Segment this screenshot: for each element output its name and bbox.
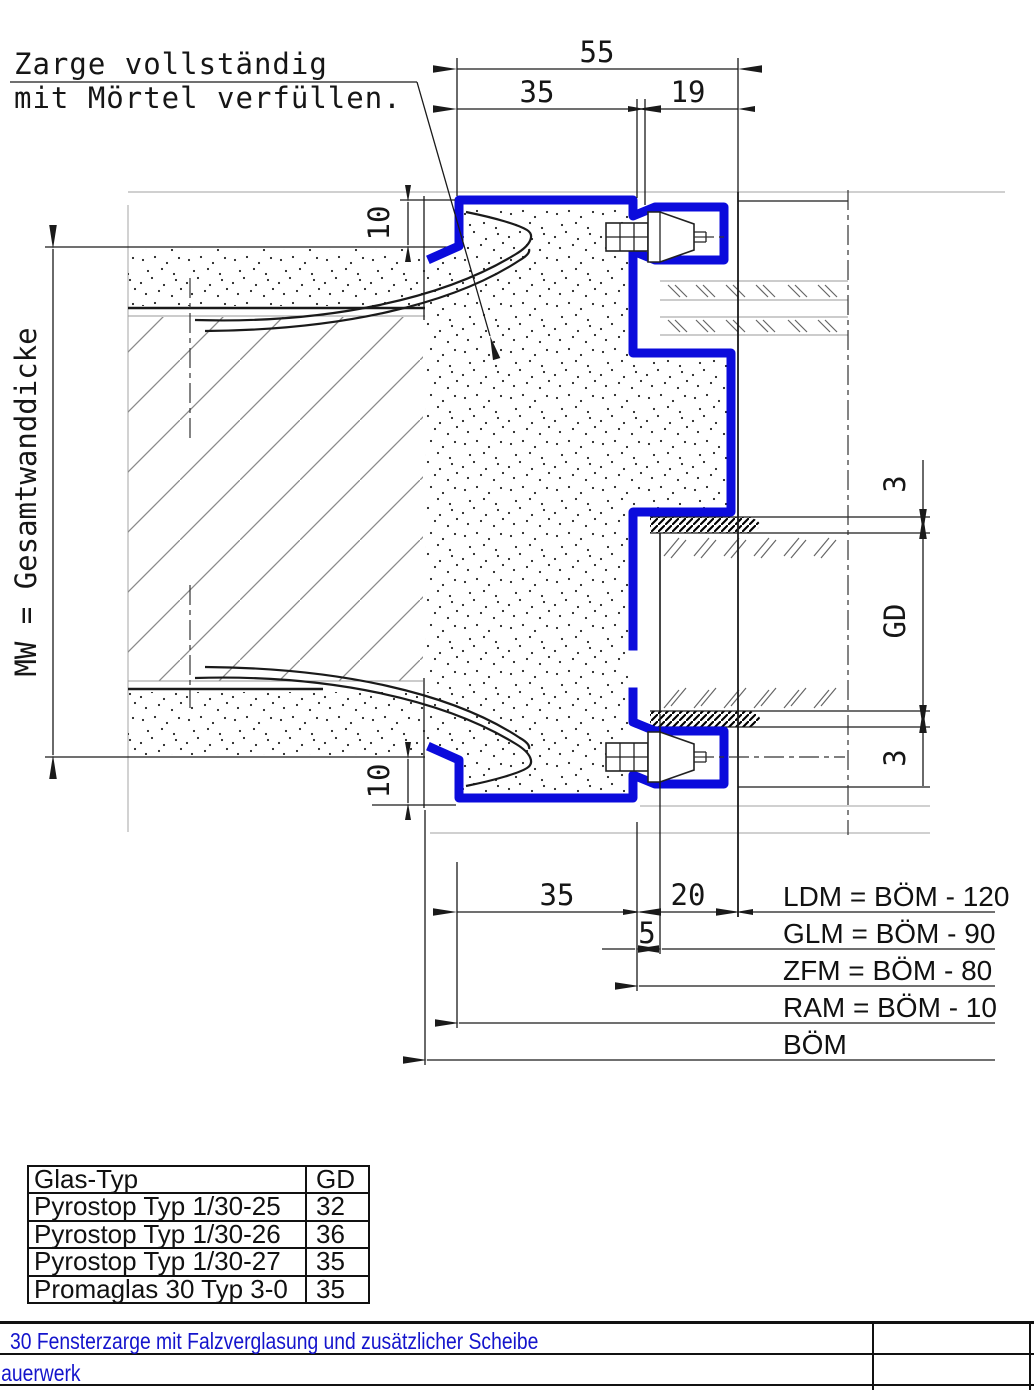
dim-35-bottom: 35: [540, 878, 575, 912]
title-block-row2: Mauerwerk: [0, 1360, 81, 1387]
title-block-vline: [872, 1324, 874, 1390]
glass-table-row: Promaglas 30 Typ 3-035: [29, 1277, 368, 1302]
gd-value-cell: GD: [307, 1167, 368, 1192]
dim-3-bottom: 3: [878, 749, 912, 766]
label-ldm: LDM = BÖM - 120: [783, 881, 1009, 912]
glass-table-row: Pyrostop Typ 1/30-2532: [29, 1194, 368, 1221]
glass-type-cell: Pyrostop Typ 1/30-25: [29, 1194, 307, 1219]
title-block-bottom-line: [0, 1384, 1034, 1386]
gd-value-cell: 35: [307, 1277, 368, 1302]
glass-table-row: Pyrostop Typ 1/30-2636: [29, 1222, 368, 1249]
dim-20: 20: [671, 878, 706, 912]
annotation-line1: Zarge vollständig: [14, 47, 328, 81]
dim-10-bottom: 10: [362, 764, 396, 799]
dim-19: 19: [671, 75, 706, 109]
dim-gd: GD: [878, 604, 912, 639]
additional-glass-pane: [660, 281, 848, 335]
glazing-seal-bottom: [650, 711, 750, 727]
dim-10-top: 10: [362, 206, 396, 241]
formula-labels: LDM = BÖM - 120 GLM = BÖM - 90 ZFM = BÖM…: [783, 881, 1009, 1060]
cad-drawing-page: Zarge vollständig mit Mörtel verfüllen.: [0, 0, 1034, 1390]
glass-table-row: Pyrostop Typ 1/30-2735: [29, 1249, 368, 1276]
gd-value-cell: 35: [307, 1249, 368, 1274]
glass-type-cell: Promaglas 30 Typ 3-0: [29, 1277, 307, 1302]
glass-type-table: Glas-TypGDPyrostop Typ 1/30-2532Pyrostop…: [27, 1165, 370, 1304]
annotation-line2: mit Mörtel verfüllen.: [14, 81, 402, 115]
title-block: 30 Fensterzarge mit Falzverglasung und z…: [0, 1321, 1034, 1390]
frame-face-lines: [738, 190, 930, 917]
dim-3-top: 3: [878, 475, 912, 492]
glazing-seal-top: [650, 517, 750, 533]
label-glm: GLM = BÖM - 90: [783, 918, 995, 949]
dim-5: 5: [638, 916, 655, 950]
glass-table-header-row: Glas-TypGD: [29, 1167, 368, 1194]
gd-value-cell: 32: [307, 1194, 368, 1219]
glass-type-cell: Pyrostop Typ 1/30-27: [29, 1249, 307, 1274]
glass-type-cell: Pyrostop Typ 1/30-26: [29, 1222, 307, 1247]
glass-type-cell: Glas-Typ: [29, 1167, 307, 1192]
dim-55: 55: [580, 35, 615, 69]
label-ram: RAM = BÖM - 10: [783, 992, 997, 1023]
dim-35-top: 35: [520, 75, 555, 109]
title-block-vline-right: [1029, 1324, 1031, 1390]
label-zfm: ZFM = BÖM - 80: [783, 955, 992, 986]
masonry-hatch: [128, 317, 423, 681]
gd-value-cell: 36: [307, 1222, 368, 1247]
label-boem: BÖM: [783, 1029, 847, 1060]
wall-thickness-label: MW = Gesamtwanddicke: [9, 327, 43, 676]
title-block-row1: 30 Fensterzarge mit Falzverglasung und z…: [10, 1328, 538, 1355]
